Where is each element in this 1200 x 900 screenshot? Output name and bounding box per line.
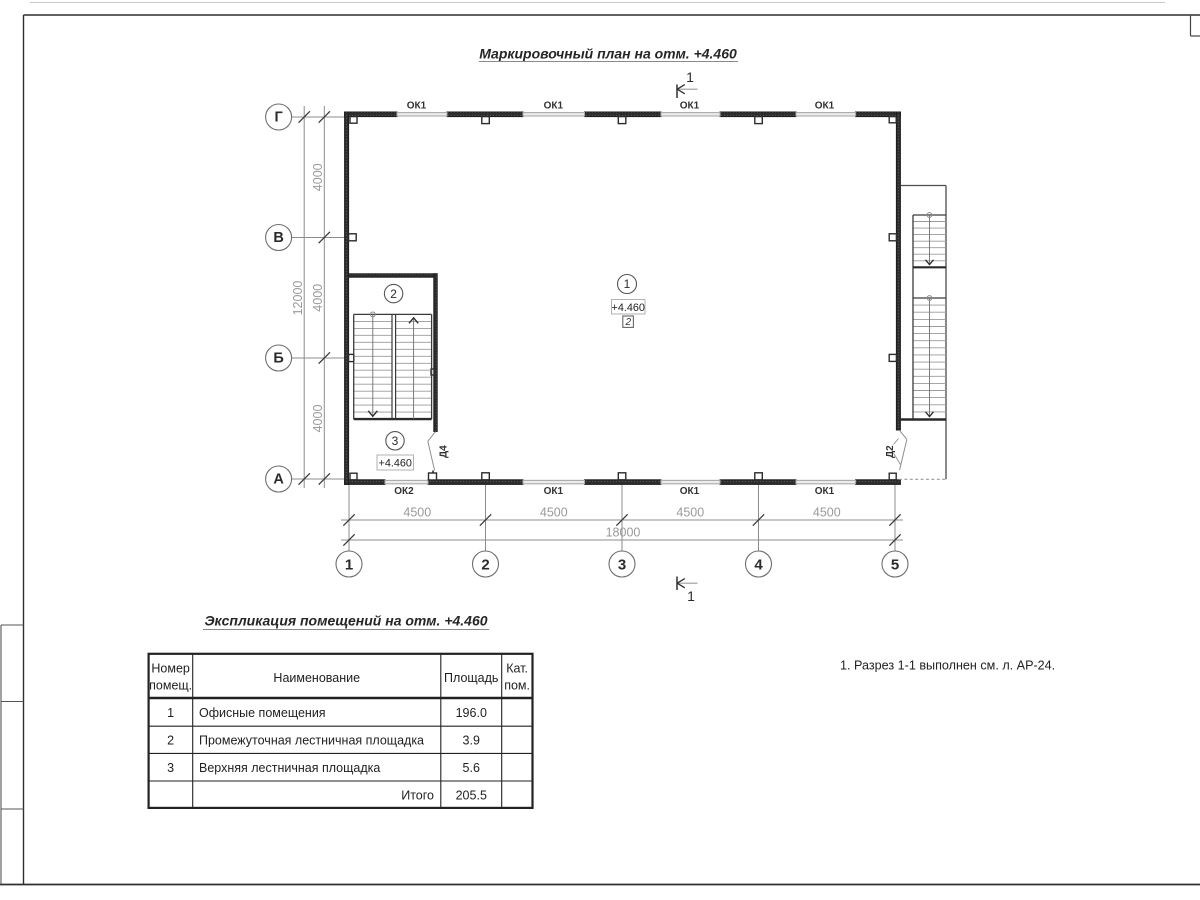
svg-text:4500: 4500 (813, 506, 841, 520)
svg-text:5: 5 (891, 557, 899, 574)
svg-text:Б: Б (273, 351, 283, 367)
svg-text:3.9: 3.9 (463, 734, 480, 748)
svg-text:пом.: пом. (504, 679, 530, 693)
svg-text:1: 1 (687, 588, 695, 604)
svg-text:Офисные помещения: Офисные помещения (199, 706, 326, 720)
svg-text:2: 2 (625, 317, 632, 328)
svg-text:4000: 4000 (311, 284, 325, 312)
svg-text:Д2: Д2 (885, 445, 896, 458)
svg-text:2: 2 (481, 557, 489, 574)
svg-text:ОК1: ОК1 (680, 101, 700, 112)
svg-text:12000: 12000 (291, 281, 305, 316)
svg-text:1. Разрез 1-1 выполнен см. л.: 1. Разрез 1-1 выполнен см. л. АР-24. (840, 659, 1055, 673)
svg-text:3: 3 (392, 434, 399, 448)
svg-text:ОК1: ОК1 (815, 486, 835, 497)
svg-text:2: 2 (390, 287, 397, 301)
svg-text:4500: 4500 (403, 506, 431, 520)
svg-text:18000: 18000 (606, 526, 641, 540)
svg-text:5.6: 5.6 (463, 761, 480, 775)
svg-text:ОК2: ОК2 (394, 486, 414, 497)
svg-text:4000: 4000 (311, 163, 325, 191)
svg-text:Номер: Номер (151, 662, 190, 676)
svg-text:4500: 4500 (676, 506, 704, 520)
svg-text:Г: Г (274, 110, 282, 126)
svg-text:ОК1: ОК1 (407, 101, 427, 112)
svg-text:4000: 4000 (311, 405, 325, 433)
svg-text:Итого: Итого (401, 789, 434, 803)
svg-text:1: 1 (624, 277, 631, 291)
svg-text:ОК1: ОК1 (544, 486, 564, 497)
svg-text:Кат.: Кат. (506, 662, 528, 676)
svg-text:3: 3 (618, 557, 626, 574)
svg-text:1: 1 (345, 557, 353, 574)
svg-text:196.0: 196.0 (456, 706, 487, 720)
svg-text:А: А (273, 472, 284, 488)
svg-text:Маркировочный план на отм. +4.: Маркировочный план на отм. +4.460 (479, 46, 737, 62)
svg-text:Наименование: Наименование (273, 671, 360, 685)
svg-text:205.5: 205.5 (456, 789, 487, 803)
svg-text:4500: 4500 (540, 506, 568, 520)
svg-text:+4.460: +4.460 (612, 302, 645, 314)
svg-text:+4.460: +4.460 (379, 458, 412, 470)
svg-text:Экспликация помещений на отм.: Экспликация помещений на отм. +4.460 (204, 613, 487, 629)
svg-text:ОК1: ОК1 (815, 101, 835, 112)
svg-text:Верхняя лестничная площадка: Верхняя лестничная площадка (199, 761, 380, 775)
svg-text:помещ.: помещ. (149, 679, 192, 693)
svg-text:4: 4 (754, 557, 763, 574)
svg-text:Д4: Д4 (439, 445, 450, 458)
svg-text:ОК1: ОК1 (544, 101, 564, 112)
svg-text:Промежуточная лестничная площа: Промежуточная лестничная площадка (199, 734, 424, 748)
svg-text:1: 1 (686, 69, 694, 85)
svg-text:Площадь: Площадь (444, 671, 498, 685)
svg-text:В: В (273, 230, 283, 246)
svg-text:ОК1: ОК1 (680, 486, 700, 497)
svg-text:2: 2 (167, 734, 174, 748)
svg-text:1: 1 (167, 706, 174, 720)
svg-text:3: 3 (167, 761, 174, 775)
